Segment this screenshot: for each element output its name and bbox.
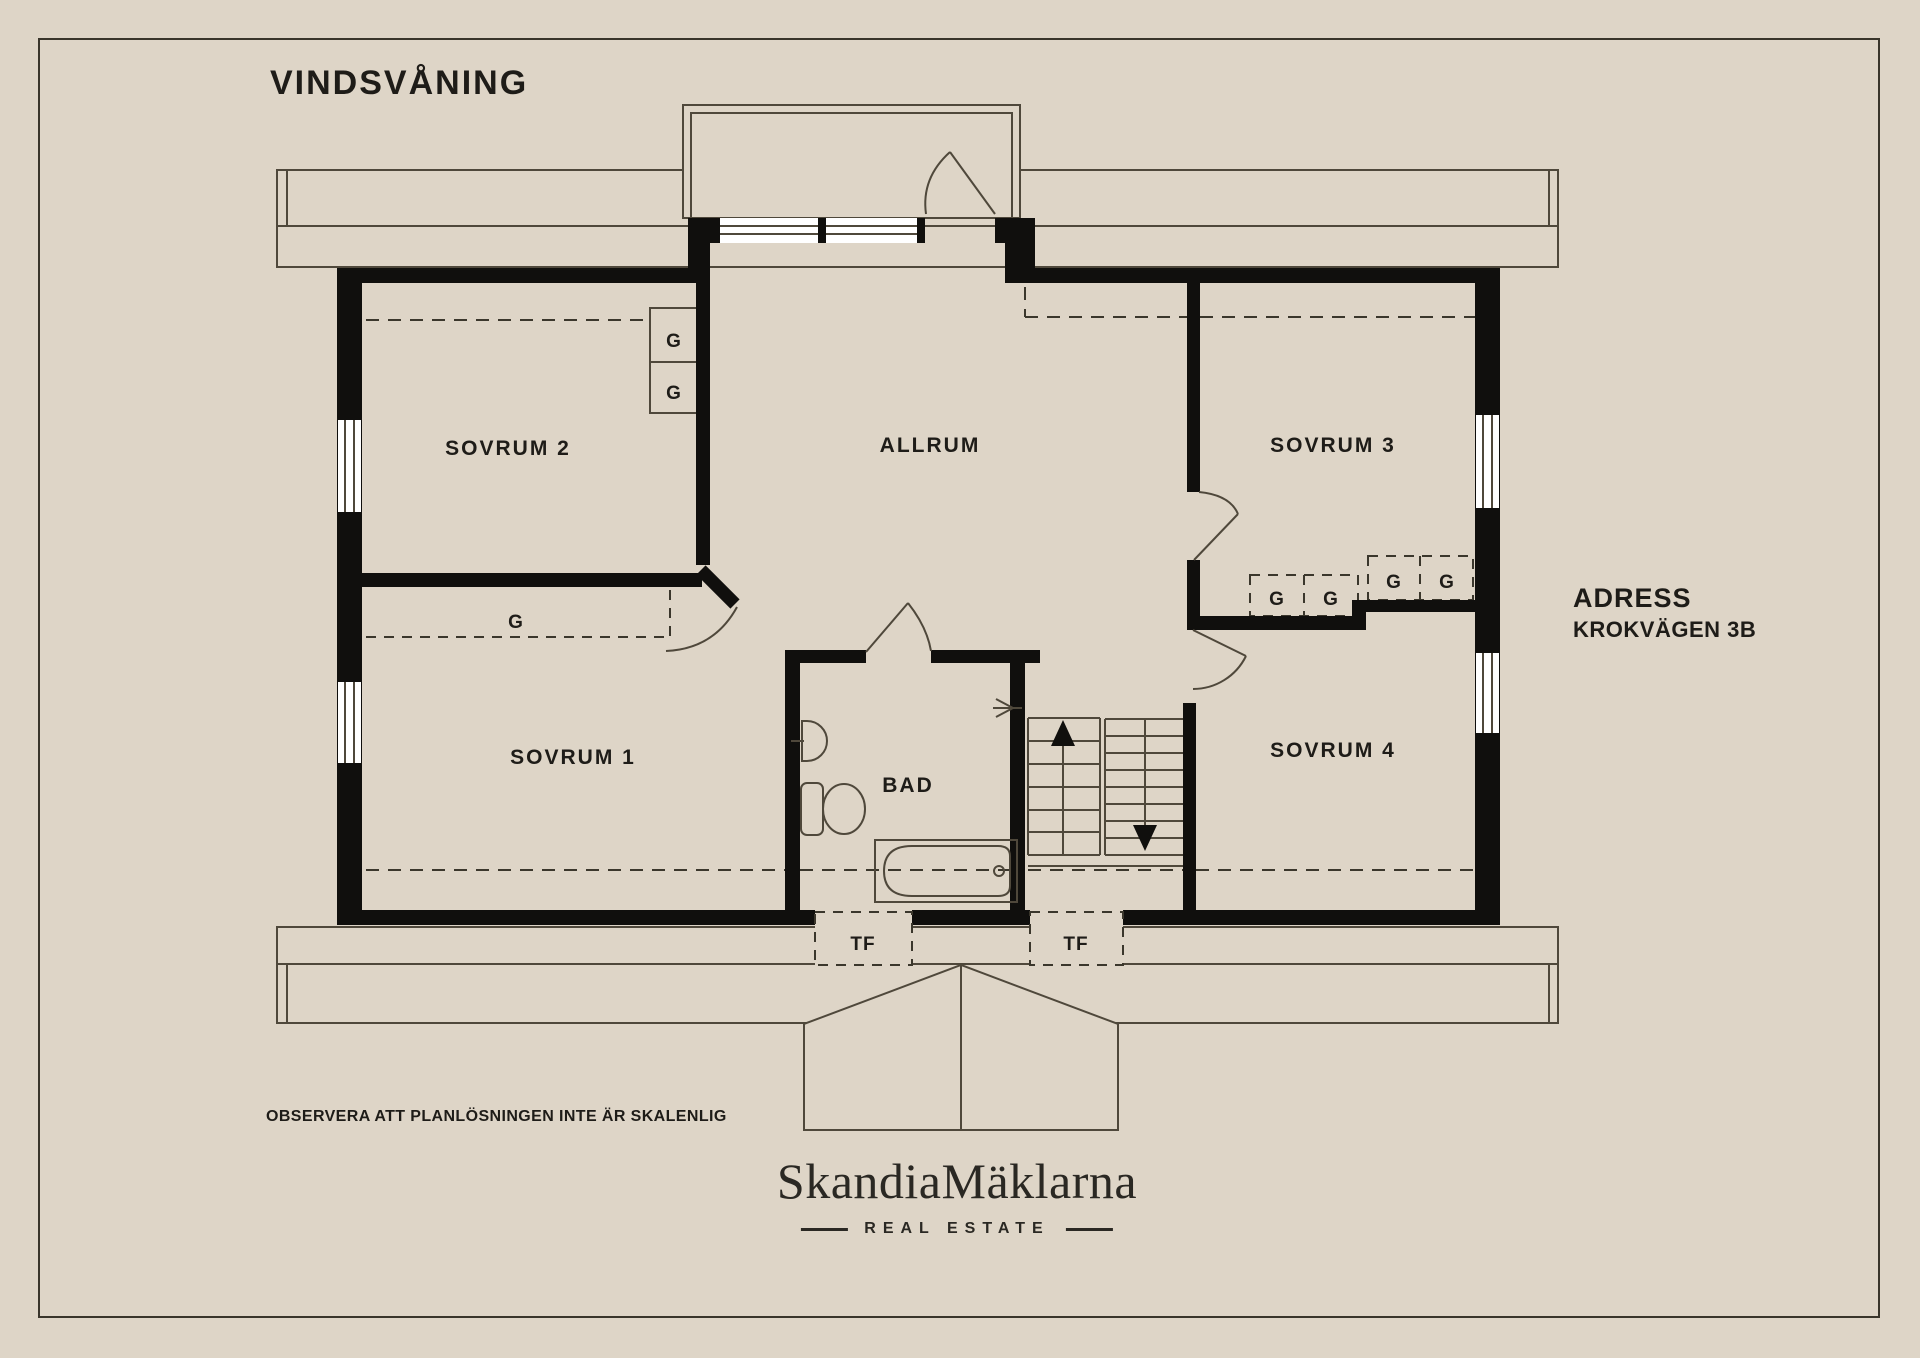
- room-label-sovrum3: SOVRUM 3: [1270, 434, 1396, 457]
- closet-label: G: [508, 612, 524, 633]
- door-sovrum3: [1194, 492, 1238, 560]
- closet-label: G: [1439, 572, 1455, 593]
- balcony-dormer: [683, 105, 1020, 218]
- floor-plan-page: VINDSVÅNING ADRESS KROKVÄGEN 3B OBSERVER…: [0, 0, 1920, 1358]
- room-label-sovrum2: SOVRUM 2: [445, 437, 571, 460]
- room-label-sovrum1: SOVRUM 1: [510, 746, 636, 769]
- stairs: [1028, 718, 1183, 866]
- closet-label: G: [1323, 589, 1339, 610]
- closet-label: G: [666, 383, 682, 404]
- closet-label: G: [1269, 589, 1285, 610]
- windows: [338, 218, 1499, 763]
- toilet-icon: [801, 783, 865, 835]
- closets: G G G G G G G: [366, 308, 1473, 637]
- skylight-label: TF: [1063, 934, 1088, 955]
- roof-gable: [804, 965, 1118, 1130]
- skylight-label: TF: [850, 934, 875, 955]
- closet-label: G: [1386, 572, 1402, 593]
- walls: [337, 218, 1500, 925]
- door-sovrum4: [1193, 630, 1246, 689]
- room-label-bad: BAD: [882, 774, 934, 797]
- door-bad: [866, 603, 931, 652]
- room-label-sovrum4: SOVRUM 4: [1270, 739, 1396, 762]
- stairs-down-arrow-icon: [1133, 719, 1157, 851]
- floor-plan-drawing: G G G G G G G: [0, 0, 1920, 1358]
- closet-label: G: [666, 331, 682, 352]
- room-label-allrum: ALLRUM: [880, 434, 981, 457]
- bathroom-fixtures: [791, 699, 1022, 902]
- window: [338, 218, 1499, 763]
